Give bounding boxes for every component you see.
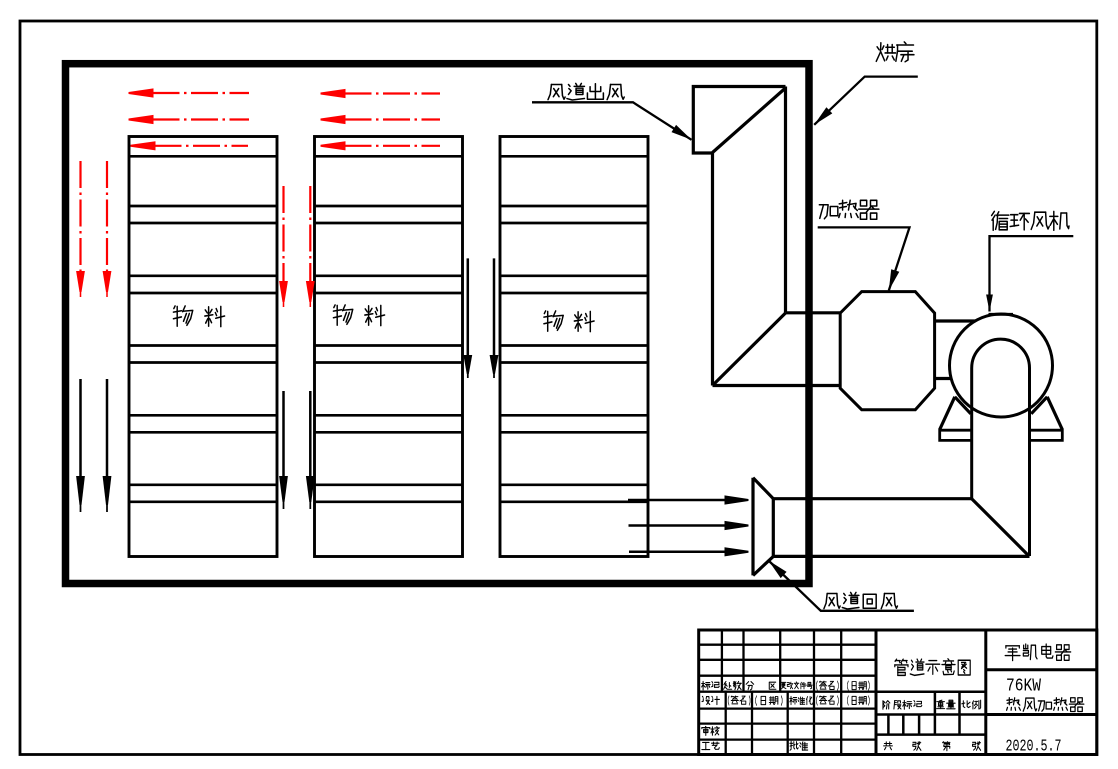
svg-text:2020.5.7: 2020.5.7 (1006, 737, 1062, 756)
svg-text:76KW: 76KW (1006, 677, 1041, 697)
